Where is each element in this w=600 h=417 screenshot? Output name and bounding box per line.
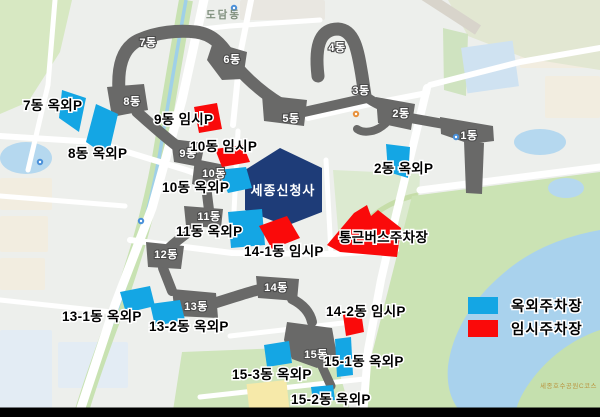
map-poi-icon [353,111,359,117]
sejong-new-complex-label: 세종신청사 [251,183,316,198]
outdoor-parking-area [264,341,292,367]
parking-area-label: 13-1동 옥외P [62,308,142,324]
lake-course-label: 세종호수공원C코스 [540,381,597,390]
parking-area-label: 8동 옥외P [68,145,127,161]
legend-temporary-swatch [468,320,498,337]
parking-area-label: 14-2동 임시P [326,304,406,319]
legend-temporary-label: 임시주차장 [511,320,583,338]
parking-area-label: 2동 옥외P [374,160,433,176]
parking-area-label: 15-1동 옥외P [324,353,404,369]
parking-area-label: 통근버스주차장 [339,229,428,245]
legend-outdoor-label: 옥외주차장 [511,297,583,315]
building-unit-label: 12동 [154,248,178,261]
parking-area-label: 7동 옥외P [23,97,82,113]
parking-area-label: 10동 옥외P [162,179,229,195]
building-unit-label: 13동 [184,300,208,313]
map-poi-icon [138,218,144,224]
parking-area-label: 9동 임시P [154,112,213,127]
building-unit-label: 6동 [223,53,240,66]
building-unit-label: 5동 [282,112,299,125]
parking-area-label: 10동 임시P [190,139,257,154]
parking-area-label: 13-2동 옥외P [149,318,229,334]
parking-area-label: 14-1동 임시P [244,244,324,259]
map-screenshot: 도담동 세종신청사 세종호수공원C코스 7동6동4동3동2동1동8동5동9동10… [0,0,600,417]
building-unit-label: 8동 [123,95,140,108]
building-unit-label: 10동 [202,167,226,180]
map-poi-icon [453,134,459,140]
district-label: 도담동 [206,8,241,21]
legend-outdoor-swatch [468,297,498,314]
building-unit-label: 3동 [352,84,369,97]
parking-area-label: 11동 옥외P [176,223,242,239]
building-unit-label: 1동 [460,129,477,142]
building-unit-label: 4동 [328,41,345,54]
building-unit-label: 2동 [392,107,409,120]
letterbox-bar [0,408,600,417]
gov-building-block [464,141,484,194]
parking-area-label: 15-2동 옥외P [291,391,371,407]
map-poi-icon [37,159,43,165]
map-canvas[interactable]: 도담동 세종신청사 세종호수공원C코스 7동6동4동3동2동1동8동5동9동10… [0,0,600,417]
building-unit-label: 14동 [264,281,288,294]
building-unit-label: 7동 [139,36,156,49]
parking-area-label: 15-3동 옥외P [232,366,312,382]
building-unit-label: 11동 [197,210,220,223]
